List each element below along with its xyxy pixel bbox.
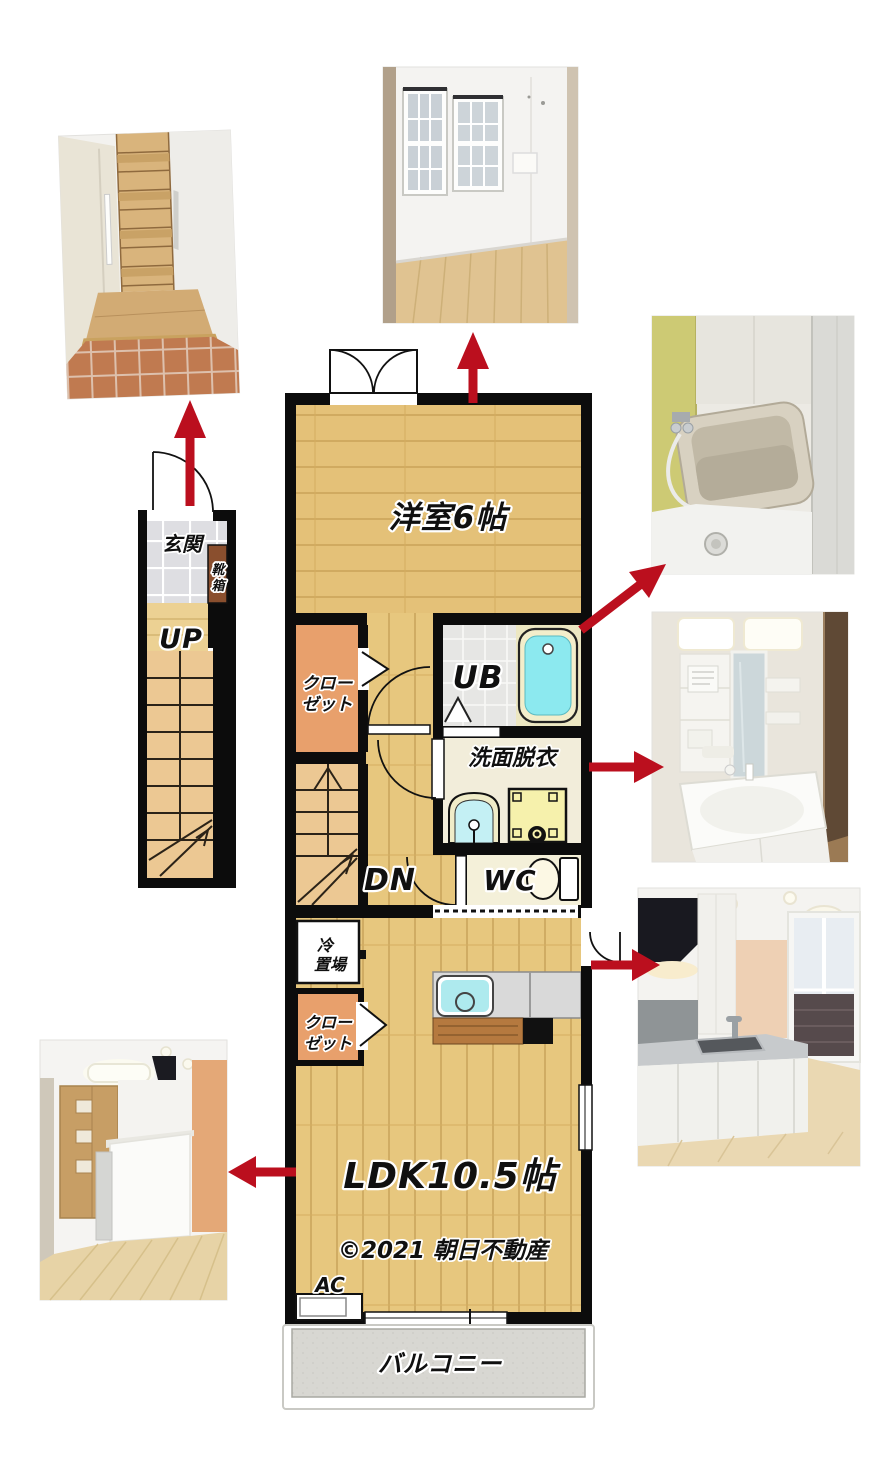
label-ldk: LDK10.5帖 bbox=[343, 1156, 562, 1197]
photo-washroom bbox=[652, 612, 848, 862]
ac-unit bbox=[296, 1294, 362, 1320]
photo-western-room bbox=[383, 67, 578, 323]
vanity-mirror bbox=[732, 652, 766, 778]
photo-bathroom bbox=[652, 316, 854, 574]
main-plan: 洋室6帖 クロー ゼット UB 洗面脱衣 DN WC 冷 置場 クロー ゼット … bbox=[285, 350, 620, 1328]
kitchen-sink bbox=[696, 1036, 764, 1054]
bath-floor bbox=[652, 504, 812, 574]
label-up: UP bbox=[159, 624, 203, 655]
label-closet-lower: クロー bbox=[304, 1013, 353, 1032]
balcony: バルコニー bbox=[283, 1325, 594, 1409]
arrow-to-western-room-photo bbox=[457, 332, 489, 403]
ldk-side-window bbox=[579, 1085, 592, 1150]
wc-door-leaf bbox=[456, 856, 466, 907]
stove-icon bbox=[523, 1018, 553, 1044]
photo-entrance bbox=[58, 130, 239, 399]
tile-floor bbox=[66, 336, 240, 399]
label-ac: AC bbox=[313, 1273, 345, 1297]
accent-wall bbox=[192, 1060, 227, 1232]
ceiling-light bbox=[88, 1064, 150, 1082]
bathtub-icon bbox=[519, 629, 577, 722]
label-closet-upper: ゼット bbox=[302, 695, 353, 715]
arrow-to-entrance-photo bbox=[174, 400, 206, 506]
washing-machine-icon bbox=[509, 789, 566, 844]
french-door-opening bbox=[330, 393, 417, 405]
label-closet-lower: ゼット bbox=[304, 1034, 352, 1053]
downlight bbox=[784, 892, 796, 904]
kitchen-cabinets bbox=[638, 1058, 808, 1146]
downlight bbox=[183, 1059, 193, 1069]
balcony-window bbox=[788, 912, 860, 1062]
label-stairs-down: DN bbox=[364, 863, 416, 898]
floorplan-canvas: 玄関 靴 箱 UP bbox=[0, 0, 886, 1469]
downlight bbox=[161, 1047, 171, 1057]
entrance-door-arc bbox=[153, 452, 213, 512]
label-fridge: 冷 bbox=[317, 936, 335, 955]
faucet bbox=[726, 1016, 742, 1022]
washbasin-icon bbox=[449, 793, 499, 843]
photo-kitchen bbox=[638, 888, 860, 1166]
label-fridge: 置場 bbox=[314, 955, 348, 974]
label-shoe-box: 靴 bbox=[211, 562, 226, 578]
entrance-door-opening bbox=[147, 510, 213, 521]
label-wc: WC bbox=[483, 864, 536, 897]
kitchen-side-door-arc bbox=[590, 932, 620, 962]
grid-window-right bbox=[453, 95, 503, 191]
label-unit-bath: UB bbox=[453, 660, 504, 696]
grid-window-left bbox=[403, 87, 447, 195]
range-hood bbox=[638, 898, 698, 962]
copyright-text: ©2021 朝日不動産 bbox=[338, 1238, 551, 1264]
photo-ldk bbox=[40, 1040, 227, 1300]
washroom-door-leaf bbox=[432, 739, 444, 799]
bathtub bbox=[674, 400, 816, 521]
floorplan-page: 玄関 靴 箱 UP bbox=[0, 0, 886, 1469]
label-washroom: 洗面脱衣 bbox=[468, 745, 559, 771]
counter-island bbox=[96, 1130, 194, 1242]
entrance-strip: 玄関 靴 箱 UP bbox=[138, 452, 236, 888]
wood-stairs bbox=[116, 132, 173, 292]
label-balcony: バルコニー bbox=[378, 1350, 503, 1378]
wood-landing bbox=[84, 289, 214, 341]
label-entrance: 玄関 bbox=[162, 532, 205, 556]
french-door-icon bbox=[330, 350, 417, 393]
label-western-room: 洋室6帖 bbox=[389, 500, 512, 536]
wall-vent bbox=[513, 153, 537, 173]
ub-door-opening bbox=[443, 727, 500, 737]
label-closet-upper: クロー bbox=[302, 674, 354, 694]
